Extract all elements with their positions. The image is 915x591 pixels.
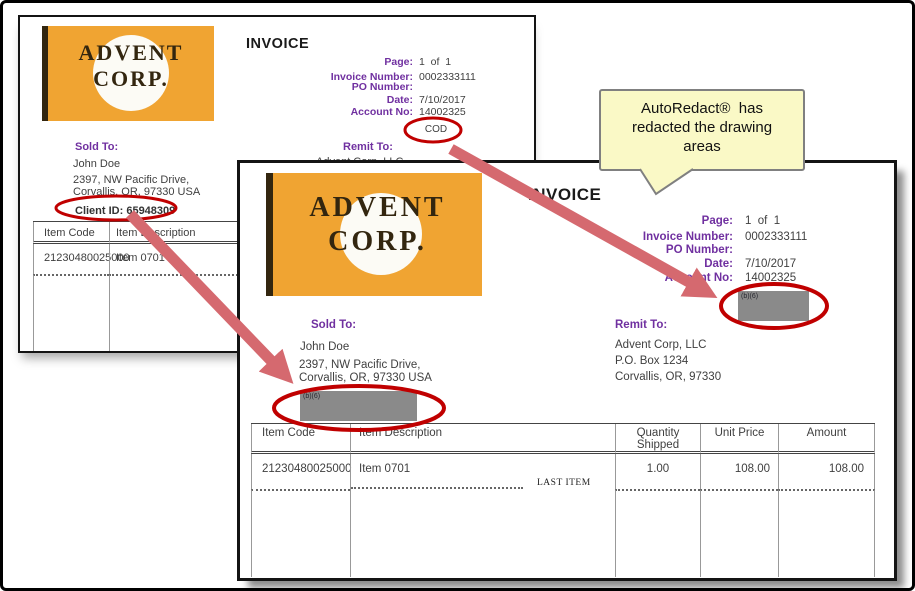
dotted-separator <box>700 489 778 577</box>
company-logo: ADVENT CORP. <box>42 26 214 121</box>
field-value <box>413 81 419 93</box>
front-invoice-page: ADVENT CORP. INVOICE Page: 1 of 1 Invoic… <box>237 160 897 581</box>
field-value: 0002333111 <box>733 231 807 243</box>
dotted-separator <box>33 274 109 351</box>
field-label: PO Number: <box>246 81 413 93</box>
field-label: Date: <box>560 258 733 270</box>
cell-item-code: 21230480025000 <box>251 454 350 489</box>
sold-to-name: John Doe <box>300 341 349 353</box>
logo-line1: ADVENT <box>273 191 482 225</box>
sold-to-label: Sold To: <box>311 319 356 331</box>
field-value: 14002325 <box>413 106 466 118</box>
address-line2: Corvallis, OR, 97330 USA <box>73 186 200 198</box>
col-header-unit-price: Unit Price <box>700 424 778 454</box>
field-row-account: Account No: 14002325 <box>560 272 870 284</box>
field-label: Account No: <box>560 272 733 284</box>
cell-quantity-shipped: 1.00 <box>615 454 700 489</box>
field-row-account: Account No: 14002325 <box>246 106 526 118</box>
col-header-quantity-shipped: Quantity Shipped <box>615 424 700 454</box>
remit-line2: P.O. Box 1234 <box>615 353 721 369</box>
field-row-date: Date: 7/10/2017 <box>246 94 526 106</box>
invoice-title: INVOICE <box>246 36 309 52</box>
field-value: 7/10/2017 <box>733 258 796 270</box>
cell-unit-price: 108.00 <box>700 454 778 489</box>
company-logo: ADVENT CORP. <box>266 173 482 296</box>
remit-to-label: Remit To: <box>615 319 667 331</box>
col-header-item-description: Item Description <box>350 424 615 454</box>
logo-line2: CORP. <box>48 66 214 92</box>
sold-to-name: John Doe <box>73 158 120 170</box>
logo-line2: CORP. <box>273 225 482 259</box>
cell-item-code: 21230480025000 <box>33 244 109 274</box>
remit-to-label: Remit To: <box>343 141 393 153</box>
dotted-separator <box>351 487 523 489</box>
sold-to-address: 2397, NW Pacific Drive, Corvallis, OR, 9… <box>299 359 432 385</box>
last-item-marker: LAST ITEM <box>537 478 591 488</box>
dotted-separator <box>615 489 700 577</box>
field-row-page: Page: 1 of 1 <box>246 56 526 68</box>
remit-line1: Advent Corp, LLC <box>615 337 721 353</box>
redaction-box-terms: (b)(6) <box>738 291 809 321</box>
remit-to-address: Advent Corp, LLC P.O. Box 1234 Corvallis… <box>615 337 721 385</box>
remit-line3: Corvallis, OR, 97330 <box>615 369 721 385</box>
cell-amount: 108.00 <box>778 454 875 489</box>
field-value: 14002325 <box>733 272 796 284</box>
dotted-separator <box>251 489 350 577</box>
field-row-page: Page: 1 of 1 <box>560 215 870 227</box>
field-value: 7/10/2017 <box>413 94 466 106</box>
sold-to-label: Sold To: <box>75 141 118 153</box>
field-label: Date: <box>246 94 413 106</box>
screenshot-canvas: ADVENT CORP. INVOICE Page: 1 of 1 Invoic… <box>0 0 915 591</box>
field-label: Page: <box>560 215 733 227</box>
field-label: Invoice Number: <box>560 231 733 243</box>
client-id-text: Client ID: 65948309 <box>75 205 175 217</box>
logo-text: ADVENT CORP. <box>48 40 214 92</box>
terms-cod: COD <box>416 124 456 135</box>
address-line2: Corvallis, OR, 97330 USA <box>299 372 432 385</box>
field-label: Page: <box>246 56 413 68</box>
col-header-item-code: Item Code <box>251 424 350 454</box>
line-items-table: Item Code Item Description Quantity Ship… <box>251 423 875 577</box>
field-row-po-number: PO Number: <box>246 81 526 93</box>
redaction-box-client-id: (b)(6) <box>300 391 417 421</box>
address-line1: 2397, NW Pacific Drive, <box>299 359 432 372</box>
sold-to-address: 2397, NW Pacific Drive, Corvallis, OR, 9… <box>73 174 200 198</box>
logo-text: ADVENT CORP. <box>273 191 482 259</box>
autoredact-callout-bubble: AutoRedact® has redacted the drawing are… <box>599 89 805 171</box>
field-row-date: Date: 7/10/2017 <box>560 258 870 270</box>
col-header-amount: Amount <box>778 424 875 454</box>
field-row-po-number: PO Number: <box>560 244 870 256</box>
field-row-invoice-number: Invoice Number: 0002333111 <box>560 231 870 243</box>
field-value: 1 of 1 <box>413 56 451 68</box>
address-line1: 2397, NW Pacific Drive, <box>73 174 200 186</box>
field-value <box>733 244 745 256</box>
invoice-title: INVOICE <box>528 185 601 205</box>
field-value: 1 of 1 <box>733 215 780 227</box>
logo-line1: ADVENT <box>48 40 214 66</box>
field-label: Account No: <box>246 106 413 118</box>
dotted-separator-with-label: LAST ITEM <box>350 489 615 577</box>
col-header-item-code: Item Code <box>33 222 109 244</box>
callout-text: AutoRedact® has redacted the drawing are… <box>601 91 803 156</box>
dotted-separator <box>778 489 875 577</box>
field-label: PO Number: <box>560 244 733 256</box>
